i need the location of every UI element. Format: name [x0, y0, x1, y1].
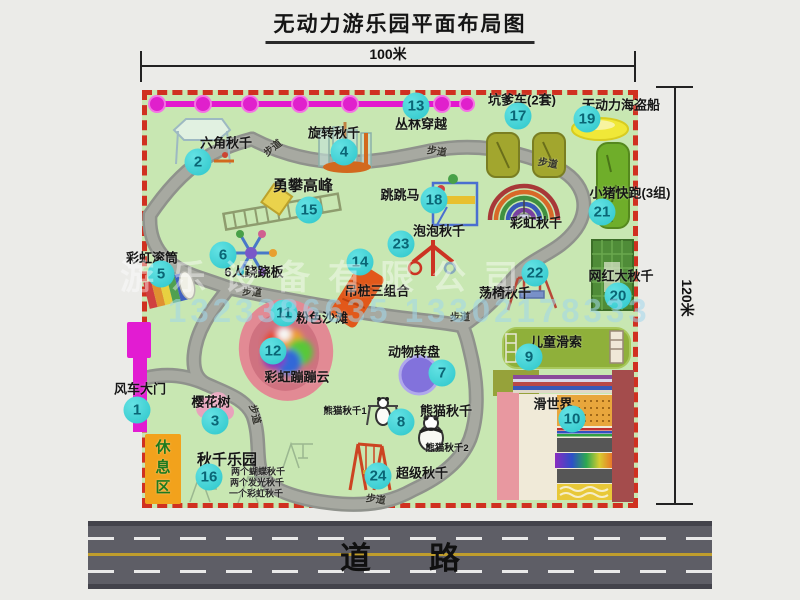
- attraction-label-7: 动物转盘: [388, 342, 440, 361]
- attraction-label-15: 勇攀高峰: [273, 175, 333, 196]
- attraction-label-12: 彩虹蹦蹦云: [264, 367, 329, 386]
- badge-19: 19: [574, 106, 601, 133]
- badge-22: 22: [522, 260, 549, 287]
- attraction-label-23: 泡泡秋千: [413, 221, 465, 240]
- attraction-label-22: 荡椅秋千: [479, 283, 531, 302]
- attraction-label-24: 超级秋千: [396, 463, 448, 482]
- attraction-label-6: 6人跷跷板: [224, 262, 283, 281]
- badge-5: 5: [148, 261, 175, 288]
- badge-7: 7: [429, 360, 456, 387]
- attraction-label-14: 吊桩三组合: [344, 281, 409, 300]
- badge-14: 14: [347, 249, 374, 276]
- attraction-label-8: 熊猫秋千: [420, 401, 472, 420]
- badge-4: 4: [331, 139, 358, 166]
- badge-13: 13: [403, 93, 430, 120]
- road-label: 道路: [340, 533, 518, 578]
- badge-3: 3: [202, 408, 229, 435]
- rest-area-label: 休息区: [152, 439, 173, 499]
- badge-9: 9: [516, 344, 543, 371]
- badges-layer: 123456789101112131415161718192021222324: [0, 0, 800, 600]
- badge-18: 18: [421, 187, 448, 214]
- panda-swing-2-label: 熊猫秋千2: [425, 440, 468, 454]
- walkway-label: 步道: [426, 141, 448, 159]
- walkway-label: 步道: [242, 283, 263, 299]
- badge-12: 12: [260, 338, 287, 365]
- road: 道路: [88, 521, 712, 589]
- screenshot-root: 无动力游乐园平面布局图 100米 120米: [0, 0, 800, 600]
- badge-16: 16: [196, 464, 223, 491]
- badge-24: 24: [365, 463, 392, 490]
- badge-1: 1: [124, 397, 151, 424]
- road-label-wrap: 道路: [88, 526, 712, 584]
- badge-2: 2: [185, 149, 212, 176]
- badge-8: 8: [388, 409, 415, 436]
- badge-17: 17: [505, 103, 532, 130]
- badge-6: 6: [210, 242, 237, 269]
- walkway-label: 步道: [365, 489, 387, 507]
- attraction-label-2: 六角秋千: [200, 133, 252, 152]
- attraction-label-4: 旋转秋千: [308, 123, 360, 142]
- walkway-label: 步道: [537, 153, 559, 171]
- badge-10: 10: [559, 406, 586, 433]
- rainbow-swing-label: 彩虹秋千: [510, 213, 562, 232]
- badge-20: 20: [605, 283, 632, 310]
- badge-21: 21: [589, 199, 616, 226]
- swing-park-note-3: 一个彩虹秋千: [229, 487, 283, 500]
- attraction-label-18: 跳跳马: [380, 185, 419, 204]
- badge-15: 15: [296, 197, 323, 224]
- panda-swing-1-label: 熊猫秋千1: [323, 403, 366, 417]
- attraction-label-11: 粉色沙滩: [296, 308, 348, 327]
- attraction-label-1: 风车大门: [114, 379, 166, 398]
- badge-11: 11: [271, 300, 298, 327]
- walkway-label: 步道: [450, 309, 470, 324]
- badge-23: 23: [388, 231, 415, 258]
- attraction-label-20: 网红大秋千: [588, 266, 653, 285]
